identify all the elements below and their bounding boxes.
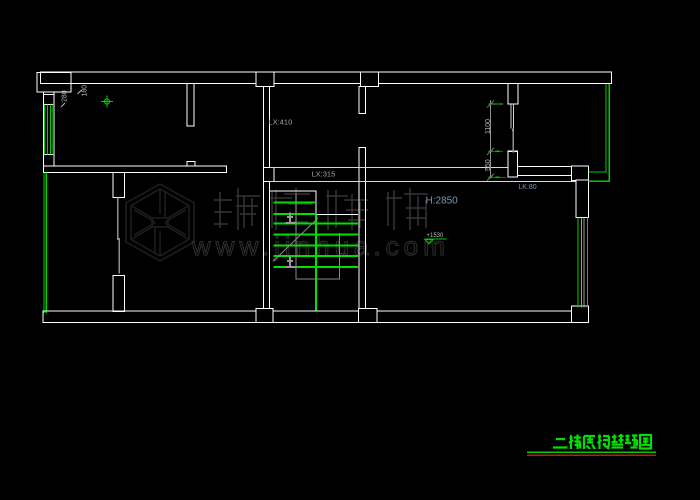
svg-text:180: 180 [82, 85, 89, 97]
svg-text:LX:315: LX:315 [312, 170, 336, 179]
svg-text:+1530: +1530 [427, 233, 445, 239]
svg-text:LK:80: LK:80 [518, 184, 536, 191]
svg-text:H:2850: H:2850 [426, 196, 459, 207]
svg-text:LX:410: LX:410 [269, 118, 293, 127]
svg-text:1100: 1100 [485, 119, 492, 134]
svg-text:550: 550 [485, 159, 492, 171]
svg-text:280: 280 [62, 90, 69, 102]
